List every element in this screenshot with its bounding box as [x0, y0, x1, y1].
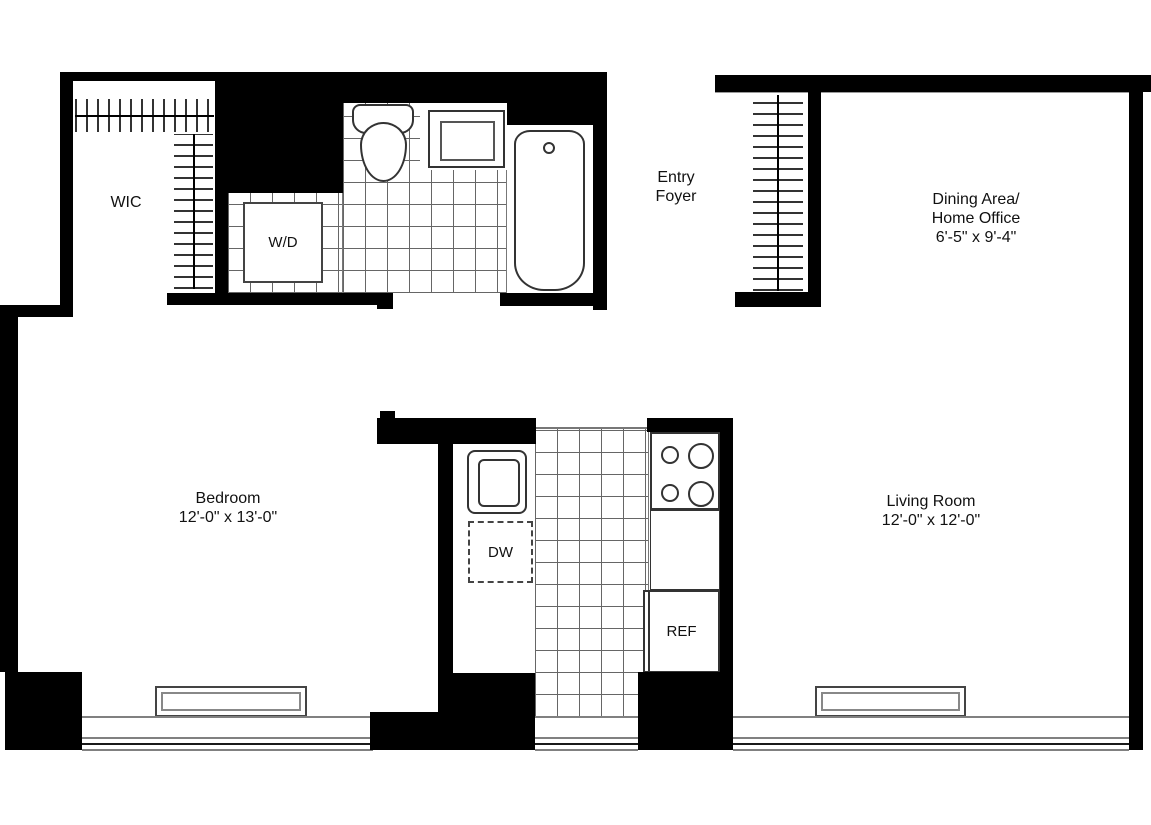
window — [535, 716, 638, 753]
stove-burner — [688, 481, 714, 507]
entry-foyer-line1: Entry — [626, 168, 726, 187]
wall — [60, 72, 73, 317]
wall — [167, 293, 393, 305]
wall — [715, 75, 1151, 92]
ref-label: REF — [667, 623, 697, 640]
door-jamb — [377, 293, 393, 309]
stove — [650, 432, 720, 510]
dishwasher: DW — [468, 521, 533, 583]
wall — [593, 72, 607, 310]
wall — [1129, 75, 1143, 750]
wall — [5, 672, 82, 750]
wall-face-line — [715, 92, 1129, 93]
refrigerator: REF — [643, 590, 720, 673]
radiator — [155, 686, 307, 717]
wall — [60, 72, 217, 81]
dining-area-label: Dining Area/ Home Office 6'-5" x 9'-4" — [896, 190, 1056, 247]
window-line — [82, 737, 373, 739]
bathroom-sink-basin — [440, 121, 495, 161]
entry-foyer-line2: Foyer — [626, 187, 726, 206]
entry-foyer-label: Entry Foyer — [626, 168, 726, 206]
wall — [377, 418, 536, 444]
living-room-label: Living Room 12'-0" x 12'-0" — [831, 492, 1031, 530]
window — [82, 716, 373, 753]
wall — [808, 92, 821, 305]
bedroom-name: Bedroom — [128, 489, 328, 508]
radiator-inner — [821, 692, 960, 711]
window-line — [535, 716, 638, 718]
radiator-inner — [161, 692, 301, 711]
kitchen-counter — [650, 510, 720, 590]
radiator — [815, 686, 966, 717]
wall — [438, 438, 453, 720]
wall — [0, 305, 18, 672]
floor-plan: W/D DW REF — [0, 0, 1151, 825]
window-line — [733, 749, 1129, 751]
window-line — [733, 716, 1129, 718]
wall — [370, 712, 454, 750]
closet-rod-icon — [753, 95, 803, 291]
window-line — [733, 737, 1129, 739]
window-line — [535, 743, 638, 745]
refrigerator-door-line — [648, 592, 650, 671]
dw-label: DW — [488, 544, 513, 561]
wall — [507, 72, 607, 125]
wall — [453, 673, 535, 750]
bathtub — [514, 130, 585, 291]
wall — [500, 293, 607, 306]
wic-label: WIC — [76, 193, 176, 212]
wall — [720, 418, 733, 674]
closet-rod-icon — [75, 99, 214, 132]
window-line — [82, 716, 373, 718]
wall — [638, 672, 733, 750]
closet-rod-icon — [174, 134, 213, 289]
bathtub-drain — [543, 142, 555, 154]
living-room-dimensions: 12'-0" x 12'-0" — [831, 511, 1031, 530]
bedroom-dimensions: 12'-0" x 13'-0" — [128, 508, 328, 527]
stove-burner — [688, 443, 714, 469]
wd-label: W/D — [268, 234, 297, 251]
kitchen-sink-basin — [478, 459, 520, 507]
window-line — [82, 749, 373, 751]
dining-line1: Dining Area/ — [896, 190, 1056, 209]
window-line — [535, 737, 638, 739]
dining-dimensions: 6'-5" x 9'-4" — [896, 228, 1056, 247]
kitchen-tile-floor — [535, 427, 649, 717]
living-room-name: Living Room — [831, 492, 1031, 511]
window-line — [535, 749, 638, 751]
stove-burner — [661, 446, 679, 464]
washer-dryer: W/D — [243, 202, 323, 283]
wall — [215, 193, 228, 305]
door-jamb — [380, 411, 395, 419]
wic-label-text: WIC — [110, 194, 141, 211]
bedroom-label: Bedroom 12'-0" x 13'-0" — [128, 489, 328, 527]
window — [733, 716, 1129, 753]
wall — [735, 292, 821, 307]
wall — [215, 72, 343, 193]
window-line — [82, 743, 373, 745]
dining-line2: Home Office — [896, 209, 1056, 228]
window-line — [733, 743, 1129, 745]
stove-burner — [661, 484, 679, 502]
